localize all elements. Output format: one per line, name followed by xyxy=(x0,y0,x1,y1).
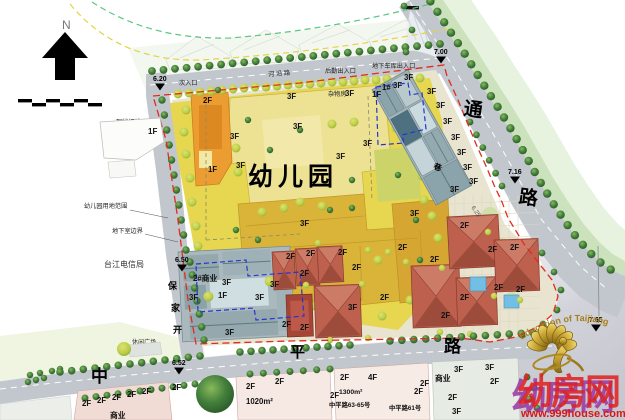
svg-text:商业: 商业 xyxy=(435,373,451,383)
svg-text:3F: 3F xyxy=(300,219,309,228)
svg-text:3F: 3F xyxy=(427,87,436,96)
svg-text:2F: 2F xyxy=(380,293,389,302)
svg-text:2F: 2F xyxy=(340,373,349,382)
svg-text:2F: 2F xyxy=(246,382,255,391)
svg-text:3F: 3F xyxy=(436,101,445,110)
svg-text:3F: 3F xyxy=(345,89,354,98)
svg-text:2F: 2F xyxy=(494,283,503,292)
svg-text:幼儿园: 幼儿园 xyxy=(248,163,338,191)
svg-text:2F: 2F xyxy=(460,221,469,230)
svg-text:次入口: 次入口 xyxy=(179,79,198,87)
svg-text:1F: 1F xyxy=(148,127,157,136)
svg-text:3F: 3F xyxy=(450,185,459,194)
svg-text:3F: 3F xyxy=(287,92,296,101)
svg-text:2F: 2F xyxy=(172,383,181,392)
svg-text:3F: 3F xyxy=(225,328,234,337)
svg-text:家: 家 xyxy=(171,302,181,313)
svg-text:3F: 3F xyxy=(463,163,472,172)
svg-text:中: 中 xyxy=(91,366,108,386)
svg-text:1#: 1# xyxy=(382,83,391,92)
svg-text:1020m²: 1020m² xyxy=(246,397,273,406)
svg-text:2F: 2F xyxy=(460,293,469,302)
svg-text:2F: 2F xyxy=(398,243,407,252)
svg-text:3F: 3F xyxy=(270,280,279,289)
svg-text:N: N xyxy=(62,18,71,32)
svg-text:1300m²: 1300m² xyxy=(339,389,363,396)
svg-text:商业: 商业 xyxy=(110,410,126,420)
svg-text:3F: 3F xyxy=(363,139,372,148)
svg-text:2F: 2F xyxy=(430,255,439,264)
svg-text:3F: 3F xyxy=(255,293,264,302)
svg-text:路: 路 xyxy=(444,336,462,356)
svg-text:地下室边界: 地下室边界 xyxy=(112,227,143,235)
svg-text:2F: 2F xyxy=(510,243,519,252)
svg-text:2F: 2F xyxy=(414,387,423,396)
svg-text:2F: 2F xyxy=(275,377,284,386)
svg-text:3F: 3F xyxy=(293,122,302,131)
svg-text:3F: 3F xyxy=(454,365,463,374)
svg-text:2F: 2F xyxy=(127,390,136,399)
svg-text:3F: 3F xyxy=(189,293,198,302)
svg-text:3F: 3F xyxy=(236,161,245,170)
svg-text:2F: 2F xyxy=(82,399,91,408)
svg-text:3F: 3F xyxy=(222,278,231,287)
svg-text:3F: 3F xyxy=(451,133,460,142)
svg-text:2F: 2F xyxy=(306,249,315,258)
svg-text:2F: 2F xyxy=(338,248,347,257)
svg-text:2F: 2F xyxy=(97,396,106,405)
svg-text:3F: 3F xyxy=(457,148,466,157)
svg-text:6.20: 6.20 xyxy=(153,76,167,83)
svg-text:2F: 2F xyxy=(282,320,291,329)
svg-text:2F: 2F xyxy=(142,387,151,396)
svg-text:平: 平 xyxy=(290,344,305,361)
svg-text:3F: 3F xyxy=(348,303,357,312)
svg-text:3F: 3F xyxy=(393,81,402,90)
svg-text:3F: 3F xyxy=(336,152,345,161)
svg-text:杂物房: 杂物房 xyxy=(328,90,347,98)
svg-text:中平路61号: 中平路61号 xyxy=(389,403,422,412)
svg-text:2F: 2F xyxy=(490,377,499,386)
svg-text:7.16: 7.16 xyxy=(508,169,522,176)
svg-text:台江电信局: 台江电信局 xyxy=(104,259,144,269)
svg-text:2F: 2F xyxy=(330,391,339,400)
svg-text:1F: 1F xyxy=(218,291,227,300)
svg-text:2F: 2F xyxy=(352,263,361,272)
svg-text:3F: 3F xyxy=(469,177,478,186)
svg-text:保: 保 xyxy=(167,280,178,291)
svg-text:6.52: 6.52 xyxy=(172,360,186,367)
svg-text:后勤出入口: 后勤出入口 xyxy=(325,67,356,75)
svg-text:地下车库出入口: 地下车库出入口 xyxy=(372,62,415,70)
svg-text:4F: 4F xyxy=(368,373,377,382)
svg-text:2F: 2F xyxy=(441,311,450,320)
svg-text:3F: 3F xyxy=(404,73,413,82)
svg-text:2F: 2F xyxy=(448,393,457,402)
svg-text:3F: 3F xyxy=(230,132,239,141)
svg-text:6.50: 6.50 xyxy=(175,257,189,264)
svg-text:2F: 2F xyxy=(203,96,212,105)
svg-text:1F: 1F xyxy=(372,90,381,99)
svg-text:中平路63-65号: 中平路63-65号 xyxy=(329,400,371,409)
svg-text:7.00: 7.00 xyxy=(434,49,448,56)
svg-text:2F: 2F xyxy=(300,269,309,278)
svg-text:3F: 3F xyxy=(410,209,419,218)
svg-text:3F: 3F xyxy=(485,363,494,372)
svg-text:3F: 3F xyxy=(443,117,452,126)
svg-text:2#商业: 2#商业 xyxy=(193,273,217,283)
svg-text:3F: 3F xyxy=(452,407,461,416)
svg-text:www.999house.com: www.999house.com xyxy=(520,408,625,420)
svg-text:幼儿园用地范围: 幼儿园用地范围 xyxy=(84,202,127,210)
svg-text:2F: 2F xyxy=(488,245,497,254)
svg-text:2F: 2F xyxy=(420,379,429,388)
svg-text:2F: 2F xyxy=(300,323,309,332)
svg-text:开: 开 xyxy=(173,325,182,335)
svg-text:2F: 2F xyxy=(516,285,525,294)
svg-text:2F: 2F xyxy=(286,252,295,261)
svg-text:1F: 1F xyxy=(208,165,217,174)
svg-text:幼房网: 幼房网 xyxy=(517,371,619,412)
svg-text:2F: 2F xyxy=(112,393,121,402)
